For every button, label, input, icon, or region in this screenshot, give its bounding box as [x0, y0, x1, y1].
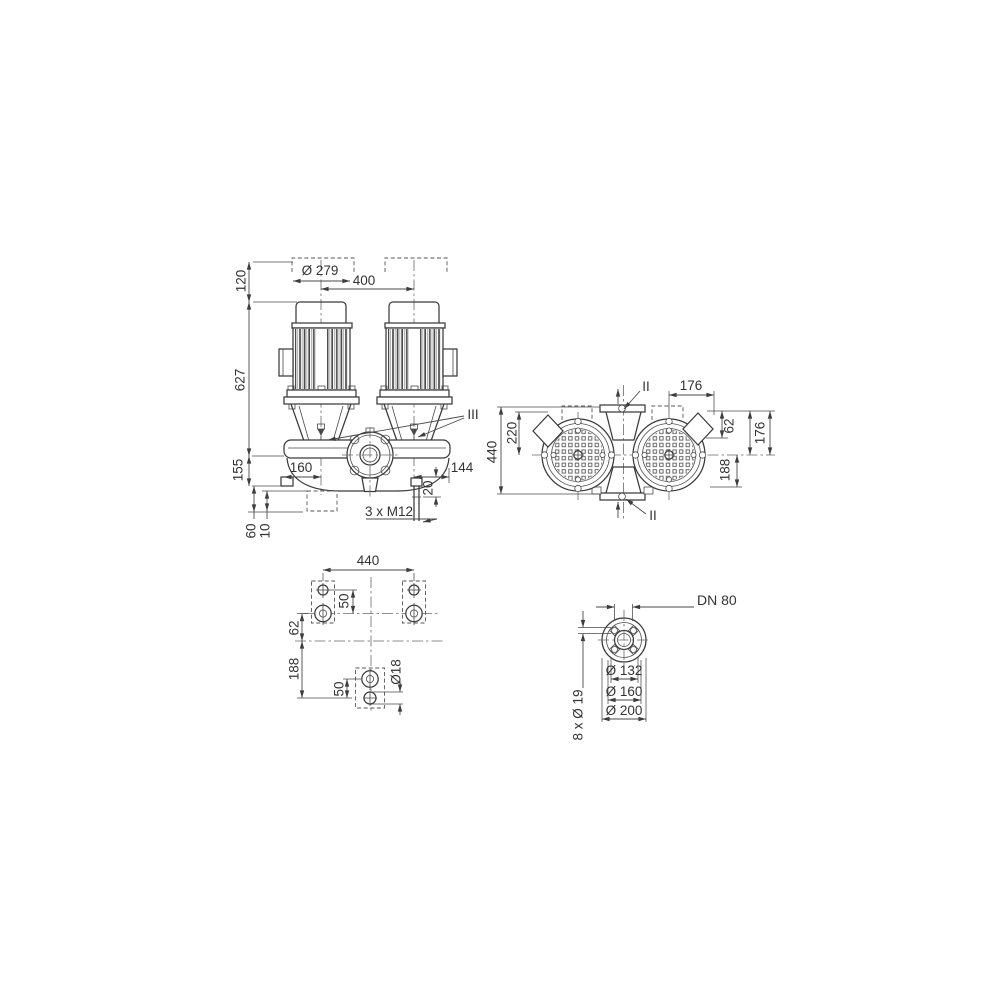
dim-120: 120 — [234, 270, 249, 293]
dim-bolt-circle: Ø 132 — [606, 663, 643, 678]
dim-220: 220 — [505, 422, 520, 445]
flange-dimensions: DN 80 8 x Ø 19 Ø 132 Ø 160 Ø 200 — [571, 592, 737, 741]
dim-176-top: 176 — [680, 378, 703, 393]
center-flange-front — [342, 427, 398, 497]
dim-188-top: 188 — [718, 459, 733, 482]
foundation-dimensions: 440 50 62 188 50 Ø18 — [287, 553, 414, 715]
ref-III: III — [467, 407, 478, 422]
foundation-plan: 440 50 62 188 50 Ø18 — [287, 553, 444, 715]
section-label-bottom: II — [649, 508, 657, 523]
dim-62-foundation: 62 — [287, 620, 302, 635]
flange-detail: DN 80 8 x Ø 19 Ø 132 Ø 160 Ø 200 — [571, 592, 737, 741]
dim-50-bottom: 50 — [332, 681, 347, 696]
top-view: II II 440 220 176 — [485, 378, 775, 523]
dim-20: 20 — [421, 480, 436, 495]
dim-440-foundation: 440 — [357, 553, 380, 568]
dim-627: 627 — [233, 369, 248, 392]
dim-raised-face: Ø 160 — [606, 684, 643, 699]
dim-60: 60 — [244, 523, 259, 538]
dim-144: 144 — [451, 460, 474, 475]
dim-62-top: 62 — [722, 418, 737, 433]
flange-face — [598, 610, 650, 668]
dim-dn80: DN 80 — [697, 592, 737, 608]
dim-440-top: 440 — [485, 441, 500, 464]
dim-188-foundation: 188 — [287, 658, 302, 681]
dim-400: 400 — [353, 273, 376, 288]
dim-160: 160 — [290, 460, 313, 475]
dim-bolt-holes: 8 x Ø 19 — [571, 689, 586, 740]
top-dimensions: 440 220 176 62 176 188 — [485, 378, 775, 494]
dim-hole-diameter: Ø18 — [389, 659, 404, 685]
anchor-pads — [312, 581, 426, 708]
left-motor — [284, 258, 359, 441]
right-motor — [377, 258, 452, 441]
section-label-top: II — [642, 379, 650, 394]
flange-bolts-top — [619, 405, 626, 500]
grout-pad-dashed — [307, 491, 337, 511]
pump-dimension-drawing: 120 627 155 Ø 279 400 160 144 20 3 x M12 — [0, 0, 1000, 1000]
dim-155: 155 — [231, 459, 246, 482]
dim-10: 10 — [258, 523, 273, 538]
dim-50-top: 50 — [337, 593, 352, 608]
dim-motor-diameter: Ø 279 — [302, 263, 339, 278]
front-view: 120 627 155 Ø 279 400 160 144 20 3 x M12 — [231, 258, 479, 539]
dim-176-right: 176 — [753, 422, 768, 445]
label-tapped-holes: 3 x M12 — [365, 504, 413, 519]
left-foot — [281, 477, 293, 486]
dim-flange-od: Ø 200 — [606, 703, 643, 718]
